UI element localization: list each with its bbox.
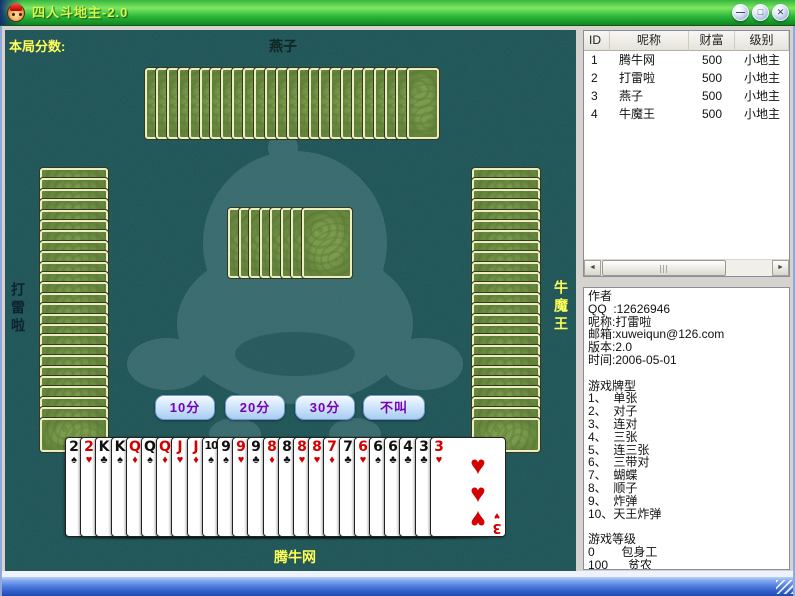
card-suit-icon: ♠ — [219, 454, 233, 466]
card-rank: J — [173, 439, 187, 455]
card-rank: 10 — [204, 439, 218, 452]
roster-cell-wealth: 500 — [689, 51, 735, 69]
player-roster: ID呢称财富级别 1腾牛网500小地主2打雷啦500小地主3燕子500小地主4牛… — [583, 30, 790, 277]
resize-grip-icon[interactable] — [776, 580, 793, 594]
card-suit-icon: ♣ — [417, 454, 431, 466]
card-suit-icon: ♥ — [173, 454, 187, 466]
card-rank: Q — [128, 439, 142, 455]
roster-cell-level: 小地主 — [735, 87, 789, 105]
round-score-label: 本局分数: — [9, 36, 65, 55]
card-rank: 7 — [341, 439, 355, 455]
card-suit-icon: ♠ — [113, 454, 127, 466]
minimize-button[interactable]: — — [732, 4, 749, 21]
card-rank: 4 — [401, 439, 415, 455]
card-pip-icon: ♥ — [461, 450, 495, 481]
card-rank: K — [97, 439, 111, 455]
app-window: 四人斗地主-2.0 —□✕ 本局分数: 燕子 打雷啦 牛魔王 腾牛网 — [0, 0, 795, 596]
card-suit-icon: ♥ — [356, 454, 370, 466]
bid-button-3[interactable]: 30分 — [295, 395, 355, 420]
card-back — [407, 68, 439, 139]
card-suit-icon: ♣ — [386, 454, 400, 466]
title-bar: 四人斗地主-2.0 —□✕ — [0, 0, 795, 26]
card-rank: 2 — [82, 439, 96, 455]
bid-button-2[interactable]: 20分 — [225, 395, 285, 420]
card-rank: 8 — [265, 439, 279, 455]
app-mascot-icon — [7, 4, 25, 22]
scrollbar-thumb[interactable] — [602, 260, 726, 276]
roster-cell-id: 3 — [584, 87, 610, 105]
roster-cell-nick: 燕子 — [610, 87, 689, 105]
card-rank: 3 — [417, 439, 431, 455]
card-suit-icon: ♣ — [401, 454, 415, 466]
card-suit-icon: ♥ — [490, 511, 504, 520]
card-rank: 6 — [371, 439, 385, 455]
player-name-top: 燕子 — [243, 36, 323, 56]
card-rank: 8 — [280, 439, 294, 455]
roster-row[interactable]: 4牛魔王500小地主 — [584, 105, 789, 123]
roster-cell-id: 2 — [584, 69, 610, 87]
info-text-line — [588, 367, 785, 380]
card-suit-icon: ♠ — [371, 454, 385, 466]
scroll-right-icon[interactable]: ► — [772, 260, 789, 276]
card-suit-icon: ♠ — [204, 454, 218, 466]
roster-cell-id: 4 — [584, 105, 610, 123]
roster-cell-nick: 腾牛网 — [610, 51, 689, 69]
bottom-bar — [0, 577, 795, 596]
roster-column-header[interactable]: 财富 — [689, 31, 735, 51]
card-rank: Q — [143, 439, 157, 455]
info-text-line: 100 贫农 — [588, 559, 785, 570]
roster-cell-nick: 打雷啦 — [610, 69, 689, 87]
info-panel: 作者QQ :12626946呢称:打雷啦邮箱:xuweiqun@126.com版… — [583, 287, 790, 570]
card-rank: 9 — [249, 439, 263, 455]
roster-cell-wealth: 500 — [689, 105, 735, 123]
card-suit-icon: ♠ — [143, 454, 157, 466]
card-suit-icon: ♥ — [432, 454, 446, 466]
bid-button-1[interactable]: 10分 — [155, 395, 215, 420]
card-rank: 9 — [219, 439, 233, 455]
card-suit-icon: ♦ — [325, 454, 339, 466]
card-suit-icon: ♥ — [82, 454, 96, 466]
card-rank: K — [113, 439, 127, 455]
hand-card[interactable]: 3♥♥♥♥3♥ — [430, 437, 506, 537]
card-rank: 6 — [386, 439, 400, 455]
roster-row[interactable]: 1腾牛网500小地主 — [584, 51, 789, 69]
card-rank: 6 — [356, 439, 370, 455]
card-rank: 3 — [490, 520, 504, 535]
card-suit-icon: ♥ — [310, 454, 324, 466]
scroll-left-icon[interactable]: ◄ — [584, 260, 601, 276]
info-text-line: 4、 三张 — [588, 431, 785, 444]
roster-column-header[interactable]: 级别 — [735, 31, 789, 51]
card-suit-icon: ♣ — [97, 454, 111, 466]
card-rank: J — [189, 439, 203, 455]
card-suit-icon: ♣ — [280, 454, 294, 466]
info-text-line: 作者 — [588, 290, 785, 303]
player-name-left: 打雷啦 — [8, 282, 28, 336]
roster-cell-nick: 牛魔王 — [610, 105, 689, 123]
roster-cell-level: 小地主 — [735, 105, 789, 123]
info-text-line: 8、 顺子 — [588, 482, 785, 495]
close-button[interactable]: ✕ — [772, 4, 789, 21]
player-name-bottom: 腾牛网 — [255, 547, 335, 567]
card-rank: 3 — [432, 439, 446, 455]
card-rank: 8 — [310, 439, 324, 455]
horizontal-scrollbar[interactable]: ◄ ► — [584, 259, 789, 276]
card-suit-icon: ♦ — [128, 454, 142, 466]
card-back — [302, 208, 352, 278]
card-rank: 7 — [325, 439, 339, 455]
roster-cell-wealth: 500 — [689, 87, 735, 105]
info-text-line: 9、 炸弹 — [588, 495, 785, 508]
roster-row[interactable]: 3燕子500小地主 — [584, 87, 789, 105]
bid-button-4[interactable]: 不叫 — [363, 395, 425, 420]
card-suit-icon: ♥ — [234, 454, 248, 466]
roster-row[interactable]: 2打雷啦500小地主 — [584, 69, 789, 87]
card-suit-icon: ♦ — [158, 454, 172, 466]
roster-cell-id: 1 — [584, 51, 610, 69]
window-left-edge — [0, 26, 2, 596]
info-text-line: 3、 连对 — [588, 418, 785, 431]
info-text-line: QQ :12626946 — [588, 303, 785, 316]
maximize-button[interactable]: □ — [752, 4, 769, 21]
roster-header: ID呢称财富级别 — [584, 31, 789, 51]
card-rank: 2 — [67, 439, 81, 455]
info-text-line: 10、天王炸弹 — [588, 508, 785, 521]
roster-column-header[interactable]: 呢称 — [610, 31, 689, 51]
card-suit-icon: ♦ — [265, 454, 279, 466]
card-suit-icon: ♠ — [67, 454, 81, 466]
player-name-right: 牛魔王 — [551, 280, 571, 334]
card-rank: 8 — [295, 439, 309, 455]
card-suit-icon: ♥ — [295, 454, 309, 466]
window-controls: —□✕ — [732, 4, 789, 21]
roster-cell-level: 小地主 — [735, 51, 789, 69]
card-suit-icon: ♣ — [249, 454, 263, 466]
info-text-line: 0 包身工 — [588, 546, 785, 559]
card-rank: 9 — [234, 439, 248, 455]
card-suit-icon: ♣ — [341, 454, 355, 466]
game-table: 本局分数: 燕子 打雷啦 牛魔王 腾牛网 10分20分30分不叫 2♠2♥K♣K… — [5, 30, 576, 571]
card-rank: Q — [158, 439, 172, 455]
window-title: 四人斗地主-2.0 — [32, 0, 128, 26]
card-corner-index: 3♥ — [490, 511, 504, 535]
info-text-line: 时间:2006-05-01 — [588, 354, 785, 367]
roster-cell-wealth: 500 — [689, 69, 735, 87]
roster-cell-level: 小地主 — [735, 69, 789, 87]
card-suit-icon: ♦ — [189, 454, 203, 466]
roster-column-header[interactable]: ID — [584, 31, 610, 51]
